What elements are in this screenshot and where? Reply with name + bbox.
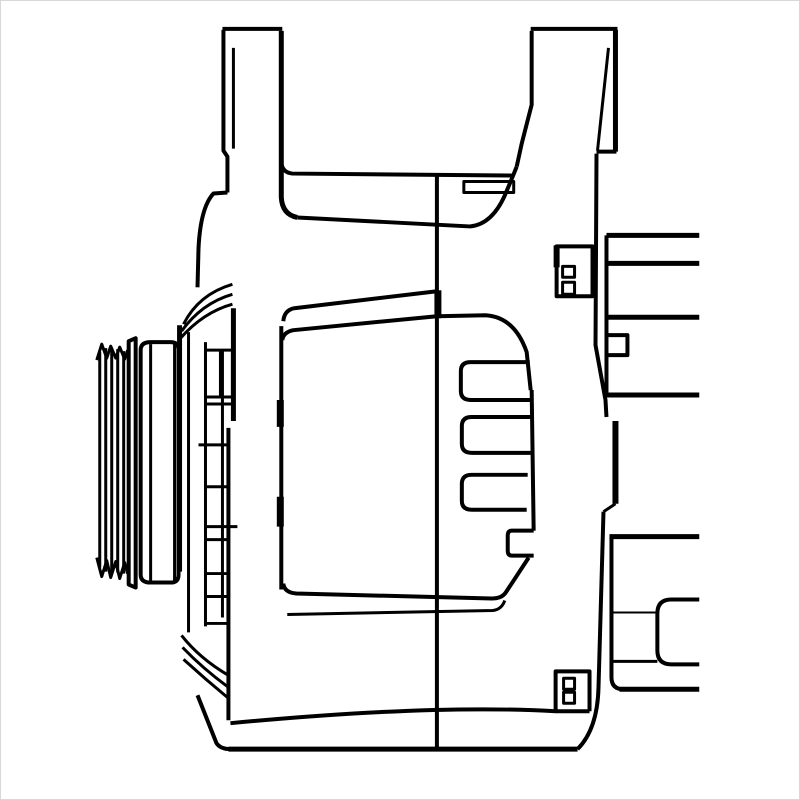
- front-housing-top-arcs: [181, 284, 233, 338]
- rear-housing-bottom-inner: [287, 600, 504, 614]
- bracket-beam-top: [281, 163, 513, 176]
- front-housing-dome: [198, 193, 228, 288]
- alternator-technical-drawing: [0, 0, 800, 800]
- bracket-right-arm-left-edge: [517, 31, 532, 167]
- vent-slot-3: [462, 475, 528, 510]
- flange-edge-step: [603, 504, 615, 512]
- pulley-step-block: [129, 338, 136, 587]
- rear-housing-bottom-outer: [283, 558, 528, 599]
- pulley-hub-inner-lines: [151, 344, 175, 580]
- vent-slot-1: [461, 362, 531, 400]
- pulley-hub-face: [141, 342, 179, 582]
- body-bottom-slope-line: [230, 709, 589, 723]
- front-housing-foot: [198, 695, 231, 749]
- flange-edge-lower: [578, 512, 604, 749]
- engine-block-top-notch: [606, 335, 627, 355]
- bracket-left-lug-left-edge: [223, 30, 227, 193]
- rear-housing-top-inner: [282, 315, 530, 390]
- rear-housing-right-edge: [532, 390, 534, 531]
- rear-housing-notch: [508, 531, 534, 556]
- front-housing-bottom-arcs: [182, 635, 229, 698]
- bracket-left-lug-right-edge: [281, 31, 297, 218]
- flange-tab-bottom-teeth: [564, 678, 575, 703]
- engine-block-bottom-inner-shape: [657, 600, 699, 665]
- pulley-rib-lines: [100, 348, 124, 573]
- vent-slot-2: [462, 417, 531, 453]
- bracket-right-lug-inner-line: [598, 48, 609, 151]
- drawing-layer: [97, 29, 699, 749]
- alternator-side-view-svg: [1, 1, 799, 799]
- flange-tab-top-teeth: [563, 266, 575, 294]
- front-housing-slot-box: [205, 350, 232, 397]
- engine-block-top-lines: [606, 235, 699, 395]
